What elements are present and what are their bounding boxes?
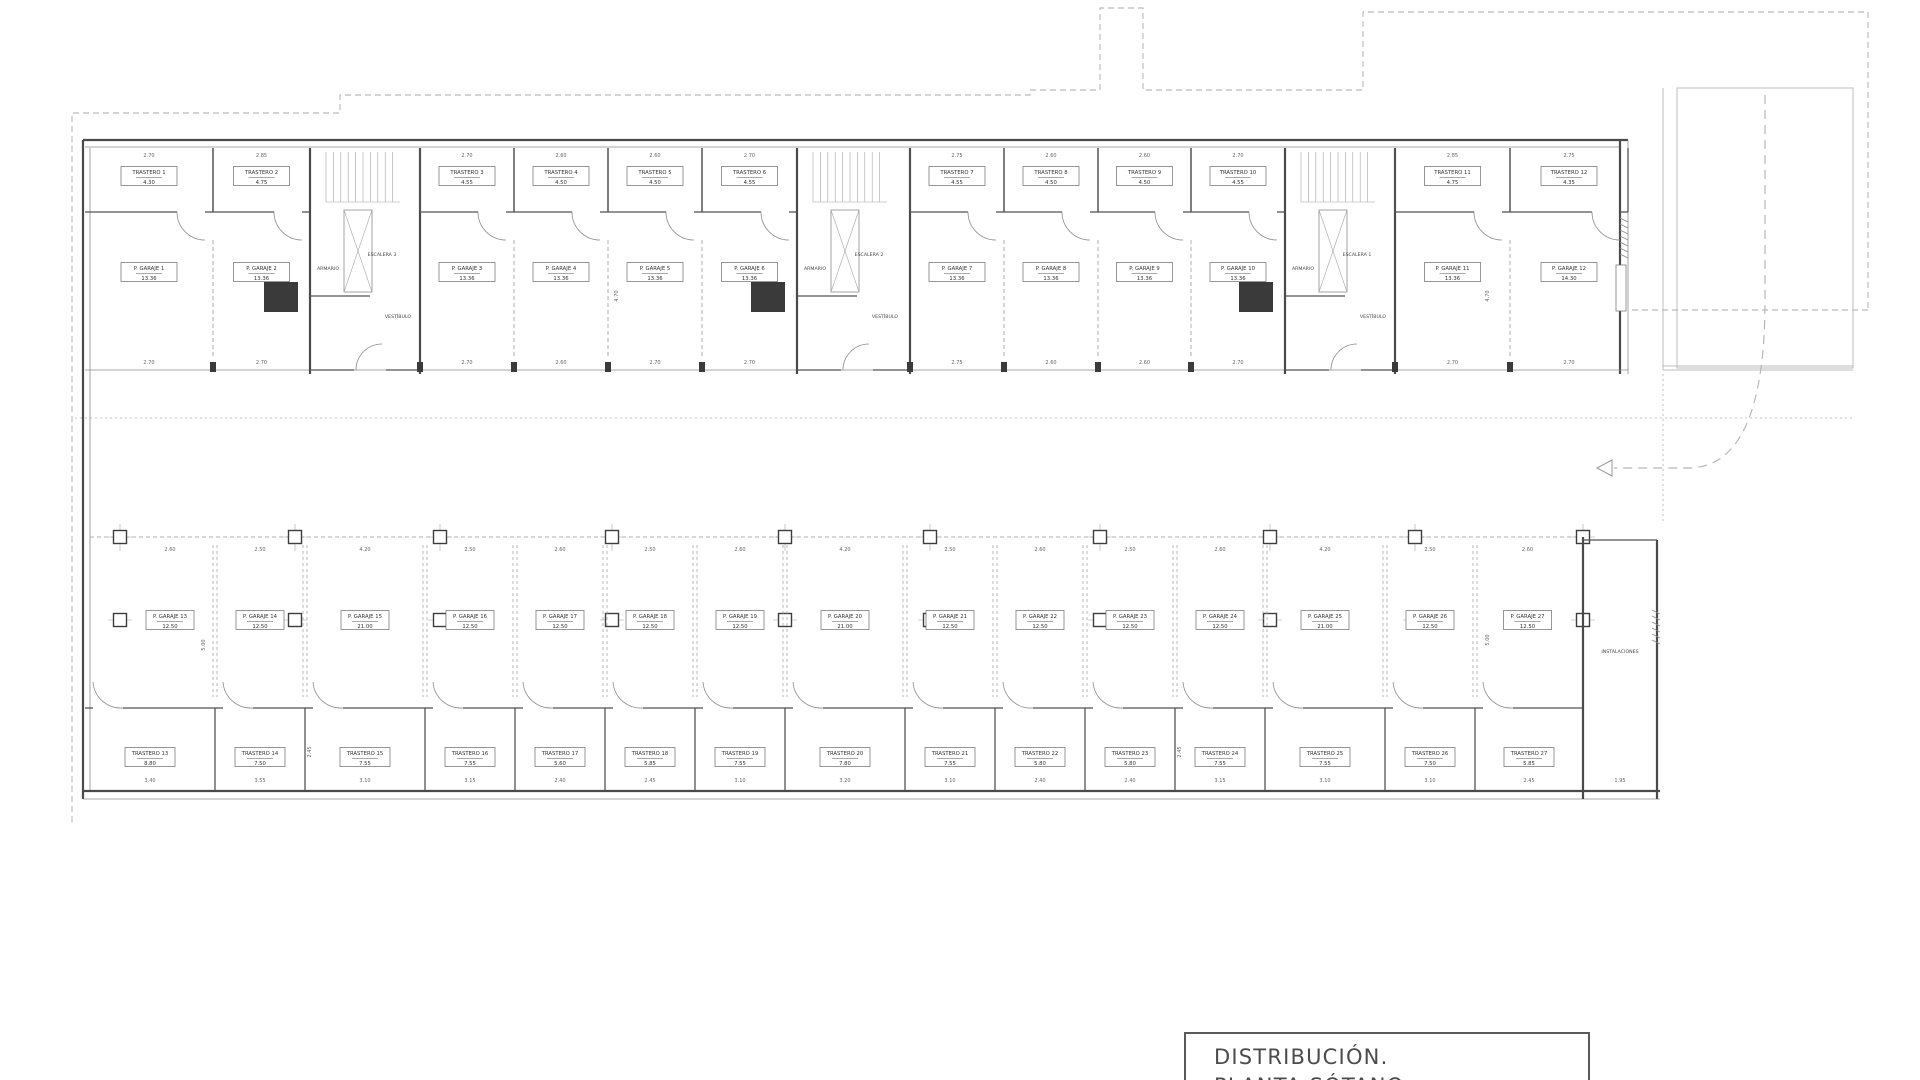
svg-text:12.50: 12.50 [1520,624,1536,630]
label-trastero-17: TRASTERO 175.60 [535,748,585,768]
svg-text:TRASTERO 9: TRASTERO 9 [1127,170,1161,176]
column [114,531,127,544]
svg-text:3.55: 3.55 [254,778,265,784]
svg-text:P. GARAJE 9: P. GARAJE 9 [1129,266,1160,272]
svg-text:P. GARAJE 8: P. GARAJE 8 [1036,266,1067,272]
column [434,614,447,627]
svg-text:ESCALERA 1: ESCALERA 1 [1343,252,1372,258]
svg-text:P. GARAJE 1: P. GARAJE 1 [134,266,165,272]
svg-text:2.60: 2.60 [1522,547,1533,553]
svg-text:5.85: 5.85 [1523,761,1535,767]
label-garaje-17: P. GARAJE 1712.50 [536,611,584,631]
label-garaje-9: P. GARAJE 913.36 [1117,263,1173,283]
svg-text:TRASTERO 8: TRASTERO 8 [1033,170,1068,176]
svg-text:TRASTERO 27: TRASTERO 27 [1510,751,1548,757]
svg-text:2.70: 2.70 [461,360,472,366]
svg-text:TRASTERO 12: TRASTERO 12 [1550,170,1588,176]
svg-text:3.10: 3.10 [1424,778,1435,784]
svg-text:2.85: 2.85 [1447,153,1458,159]
svg-text:P. GARAJE 24: P. GARAJE 24 [1203,614,1238,620]
svg-text:14.30: 14.30 [1561,276,1577,282]
title-block-line2: PLANTA SÓTANO [1214,1072,1588,1080]
svg-text:TRASTERO 24: TRASTERO 24 [1201,751,1239,757]
label-garaje-25: P. GARAJE 2521.00 [1301,611,1349,631]
svg-text:2.40: 2.40 [1034,778,1045,784]
svg-text:4.55: 4.55 [461,180,473,186]
svg-text:7.80: 7.80 [839,761,851,767]
label-trastero-8: TRASTERO 84.50 [1023,167,1079,187]
svg-text:2.40: 2.40 [554,778,565,784]
svg-text:TRASTERO 10: TRASTERO 10 [1219,170,1257,176]
svg-text:P. GARAJE 14: P. GARAJE 14 [243,614,278,620]
svg-text:4.70: 4.70 [1485,290,1491,301]
svg-text:TRASTERO 13: TRASTERO 13 [131,751,169,757]
label-garaje-5: P. GARAJE 513.36 [627,263,683,283]
svg-text:2.60: 2.60 [554,547,565,553]
svg-text:2.60: 2.60 [555,153,566,159]
svg-text:4.35: 4.35 [1563,180,1575,186]
svg-text:P. GARAJE 10: P. GARAJE 10 [1221,266,1256,272]
svg-text:TRASTERO 5: TRASTERO 5 [637,170,671,176]
svg-text:ESCALERA 3: ESCALERA 3 [368,252,397,258]
svg-text:13.36: 13.36 [742,276,758,282]
svg-text:2.60: 2.60 [1045,360,1056,366]
svg-text:P. GARAJE 22: P. GARAJE 22 [1023,614,1057,620]
svg-text:12.50: 12.50 [1212,624,1228,630]
label-garaje-23: P. GARAJE 2312.50 [1106,611,1154,631]
column [779,531,792,544]
label-garaje-19: P. GARAJE 1912.50 [716,611,764,631]
svg-text:TRASTERO 22: TRASTERO 22 [1021,751,1059,757]
column [1094,531,1107,544]
column [1264,614,1277,627]
label-trastero-26: TRASTERO 267.50 [1405,748,1455,768]
svg-text:P. GARAJE 21: P. GARAJE 21 [933,614,967,620]
svg-text:P. GARAJE 7: P. GARAJE 7 [942,266,973,272]
svg-text:TRASTERO 16: TRASTERO 16 [451,751,489,757]
svg-text:7.55: 7.55 [464,761,476,767]
entrance-ramp [1597,88,1853,522]
svg-text:5.00: 5.00 [201,639,207,650]
svg-text:13.36: 13.36 [647,276,663,282]
svg-text:TRASTERO 26: TRASTERO 26 [1411,751,1449,757]
svg-text:2.60: 2.60 [1045,153,1056,159]
title-block-line1: DISTRIBUCIÓN. [1214,1043,1588,1072]
svg-text:5.80: 5.80 [1124,761,1136,767]
svg-text:VESTÍBULO: VESTÍBULO [385,313,411,320]
svg-text:12.50: 12.50 [1422,624,1438,630]
svg-text:2.70: 2.70 [649,360,660,366]
svg-text:21.00: 21.00 [837,624,853,630]
svg-text:4.70: 4.70 [614,290,620,301]
svg-text:13.36: 13.36 [459,276,475,282]
svg-text:12.50: 12.50 [552,624,568,630]
parking-band: 2.60P. GARAJE 1312.502.50P. GARAJE 1412.… [90,524,1595,697]
column [606,531,619,544]
svg-text:2.45: 2.45 [1523,778,1534,784]
svg-text:5.60: 5.60 [554,761,566,767]
svg-text:2.60: 2.60 [555,360,566,366]
svg-text:P. GARAJE 12: P. GARAJE 12 [1552,266,1586,272]
svg-text:2.70: 2.70 [1447,360,1458,366]
svg-text:3.20: 3.20 [839,778,850,784]
label-garaje-21: P. GARAJE 2112.50 [926,611,974,631]
label-trastero-2: TRASTERO 24.75 [234,167,290,187]
label-garaje-7: P. GARAJE 713.36 [929,263,985,283]
svg-text:2.60: 2.60 [1139,360,1150,366]
svg-text:P. GARAJE 5: P. GARAJE 5 [640,266,671,272]
label-trastero-7: TRASTERO 74.55 [929,167,985,187]
svg-text:2.45: 2.45 [644,778,655,784]
svg-text:P. GARAJE 18: P. GARAJE 18 [633,614,668,620]
svg-text:2.50: 2.50 [944,547,955,553]
svg-text:5.80: 5.80 [1034,761,1046,767]
lift-door [1239,282,1273,312]
svg-text:2.60: 2.60 [649,153,660,159]
svg-text:5.00: 5.00 [1485,634,1491,645]
svg-text:13.36: 13.36 [1230,276,1246,282]
svg-text:2.60: 2.60 [1214,547,1225,553]
svg-text:P. GARAJE 23: P. GARAJE 23 [1113,614,1147,620]
instalaciones-room: INSTALACIONES1.95 [1583,537,1660,799]
svg-text:4.55: 4.55 [951,180,963,186]
label-trastero-22: TRASTERO 225.80 [1015,748,1065,768]
svg-text:P. GARAJE 2: P. GARAJE 2 [246,266,277,272]
svg-text:ARMARIO: ARMARIO [1292,266,1314,272]
svg-text:2.40: 2.40 [1124,778,1135,784]
label-garaje-4: P. GARAJE 413.36 [533,263,589,283]
svg-text:2.70: 2.70 [143,153,154,159]
svg-text:P. GARAJE 4: P. GARAJE 4 [546,266,577,272]
floor-plan-drawing: 2.70TRASTERO 14.30P. GARAJE 113.362.702.… [0,0,1920,1080]
svg-text:TRASTERO 3: TRASTERO 3 [449,170,483,176]
label-garaje-12: P. GARAJE 1214.30 [1541,263,1597,283]
svg-text:ARMARIO: ARMARIO [317,266,339,272]
svg-text:2.45: 2.45 [307,746,313,757]
label-garaje-10: P. GARAJE 1013.36 [1210,263,1266,283]
svg-text:8.80: 8.80 [144,761,156,767]
bottom-band: TRASTERO 138.803.40TRASTERO 147.503.55TR… [83,682,1660,799]
label-trastero-16: TRASTERO 167.55 [445,748,495,768]
svg-text:TRASTERO 14: TRASTERO 14 [241,751,279,757]
svg-text:2.60: 2.60 [1139,153,1150,159]
svg-text:P. GARAJE 25: P. GARAJE 25 [1308,614,1342,620]
svg-text:4.50: 4.50 [649,180,661,186]
svg-text:21.00: 21.00 [357,624,373,630]
column [1264,531,1277,544]
svg-text:P. GARAJE 16: P. GARAJE 16 [453,614,488,620]
svg-text:2.70: 2.70 [256,360,267,366]
label-garaje-13: P. GARAJE 1312.50 [146,611,194,631]
svg-text:P. GARAJE 6: P. GARAJE 6 [734,266,765,272]
svg-text:2.70: 2.70 [1232,153,1243,159]
svg-text:3.10: 3.10 [734,778,745,784]
label-trastero-6: TRASTERO 64.55 [722,167,778,187]
svg-text:2.60: 2.60 [1034,547,1045,553]
svg-text:13.36: 13.36 [254,276,270,282]
svg-text:4.20: 4.20 [359,547,370,553]
svg-text:3.10: 3.10 [944,778,955,784]
title-block: DISTRIBUCIÓN. PLANTA SÓTANO [1184,1032,1590,1080]
svg-text:TRASTERO 19: TRASTERO 19 [721,751,759,757]
svg-text:21.00: 21.00 [1317,624,1333,630]
svg-text:2.70: 2.70 [461,153,472,159]
label-trastero-14: TRASTERO 147.50 [235,748,285,768]
svg-text:2.60: 2.60 [164,547,175,553]
svg-text:12.50: 12.50 [252,624,268,630]
label-trastero-15: TRASTERO 157.55 [340,748,390,768]
svg-text:TRASTERO 15: TRASTERO 15 [346,751,384,757]
svg-text:TRASTERO 2: TRASTERO 2 [244,170,278,176]
svg-text:2.70: 2.70 [1563,360,1574,366]
label-garaje-27: P. GARAJE 2712.50 [1504,611,1552,631]
label-trastero-3: TRASTERO 34.55 [439,167,495,187]
column [779,614,792,627]
lift-door [264,282,298,312]
label-garaje-2: P. GARAJE 213.36 [234,263,290,283]
column [1409,531,1422,544]
svg-text:12.50: 12.50 [732,624,748,630]
label-trastero-1: TRASTERO 14.30 [121,167,177,187]
label-trastero-5: TRASTERO 54.50 [627,167,683,187]
svg-text:P. GARAJE 17: P. GARAJE 17 [543,614,577,620]
svg-text:2.70: 2.70 [1232,360,1243,366]
svg-text:2.70: 2.70 [143,360,154,366]
svg-text:12.50: 12.50 [942,624,958,630]
svg-text:7.55: 7.55 [944,761,956,767]
svg-text:P. GARAJE 27: P. GARAJE 27 [1511,614,1545,620]
svg-text:2.50: 2.50 [254,547,265,553]
svg-text:4.20: 4.20 [839,547,850,553]
label-garaje-24: P. GARAJE 2412.50 [1196,611,1244,631]
svg-text:TRASTERO 6: TRASTERO 6 [732,170,767,176]
svg-text:ARMARIO: ARMARIO [804,266,826,272]
svg-text:ESCALERA 2: ESCALERA 2 [855,252,884,258]
svg-text:4.55: 4.55 [744,180,756,186]
svg-text:2.50: 2.50 [644,547,655,553]
label-trastero-9: TRASTERO 94.50 [1117,167,1173,187]
svg-text:4.20: 4.20 [1319,547,1330,553]
label-trastero-21: TRASTERO 217.55 [925,748,975,768]
svg-text:12.50: 12.50 [1122,624,1138,630]
svg-text:5.85: 5.85 [644,761,656,767]
column [1094,614,1107,627]
svg-text:13.36: 13.36 [949,276,965,282]
svg-text:4.50: 4.50 [1139,180,1151,186]
label-garaje-18: P. GARAJE 1812.50 [626,611,674,631]
label-trastero-20: TRASTERO 207.80 [820,748,870,768]
label-garaje-20: P. GARAJE 2021.00 [821,611,869,631]
lift-door [751,282,785,312]
svg-text:TRASTERO 23: TRASTERO 23 [1111,751,1149,757]
svg-text:12.50: 12.50 [642,624,658,630]
svg-text:4.50: 4.50 [1045,180,1057,186]
svg-text:3.10: 3.10 [359,778,370,784]
svg-text:TRASTERO 21: TRASTERO 21 [931,751,969,757]
svg-text:12.50: 12.50 [462,624,478,630]
label-garaje-8: P. GARAJE 813.36 [1023,263,1079,283]
svg-text:3.40: 3.40 [144,778,155,784]
svg-text:7.50: 7.50 [254,761,266,767]
column [289,531,302,544]
svg-text:2.75: 2.75 [1563,153,1574,159]
svg-text:P. GARAJE 19: P. GARAJE 19 [723,614,757,620]
label-trastero-18: TRASTERO 185.85 [625,748,675,768]
svg-text:13.36: 13.36 [1137,276,1153,282]
svg-text:2.70: 2.70 [744,153,755,159]
svg-text:P. GARAJE 20: P. GARAJE 20 [828,614,863,620]
svg-text:1.95: 1.95 [1614,778,1625,784]
svg-text:TRASTERO 1: TRASTERO 1 [131,170,165,176]
floor-plan-sheet: 2.70TRASTERO 14.30P. GARAJE 113.362.702.… [0,0,1920,1080]
svg-text:13.36: 13.36 [141,276,157,282]
garage-door-right [1616,265,1626,311]
svg-text:TRASTERO 25: TRASTERO 25 [1306,751,1344,757]
column [114,614,127,627]
svg-text:2.85: 2.85 [256,153,267,159]
svg-text:3.10: 3.10 [1319,778,1330,784]
svg-text:4.75: 4.75 [256,180,268,186]
svg-text:2.50: 2.50 [1124,547,1135,553]
label-garaje-15: P. GARAJE 1521.00 [341,611,389,631]
svg-text:P. GARAJE 15: P. GARAJE 15 [348,614,382,620]
svg-text:TRASTERO 20: TRASTERO 20 [826,751,864,757]
svg-text:P. GARAJE 11: P. GARAJE 11 [1436,266,1470,272]
svg-text:TRASTERO 17: TRASTERO 17 [541,751,579,757]
svg-text:13.36: 13.36 [1043,276,1059,282]
svg-text:VESTÍBULO: VESTÍBULO [872,313,898,320]
label-garaje-1: P. GARAJE 113.36 [121,263,177,283]
svg-text:VESTÍBULO: VESTÍBULO [1360,313,1386,320]
svg-text:TRASTERO 4: TRASTERO 4 [543,170,578,176]
svg-text:3.15: 3.15 [464,778,475,784]
column [434,531,447,544]
column [289,614,302,627]
svg-text:3.15: 3.15 [1214,778,1225,784]
svg-text:TRASTERO 18: TRASTERO 18 [631,751,669,757]
column [924,531,937,544]
svg-text:12.50: 12.50 [162,624,178,630]
svg-text:7.50: 7.50 [1424,761,1436,767]
label-trastero-25: TRASTERO 257.55 [1300,748,1350,768]
column [606,614,619,627]
svg-text:P. GARAJE 26: P. GARAJE 26 [1413,614,1448,620]
top-band: 2.70TRASTERO 14.30P. GARAJE 113.362.702.… [83,140,1628,799]
label-garaje-3: P. GARAJE 313.36 [439,263,495,283]
svg-text:13.36: 13.36 [1445,276,1461,282]
entry-arrow-icon [1597,460,1612,476]
site-boundary [72,8,1868,822]
label-trastero-10: TRASTERO 104.55 [1210,167,1266,187]
svg-text:7.55: 7.55 [734,761,746,767]
label-garaje-26: P. GARAJE 2612.50 [1406,611,1454,631]
svg-text:2.50: 2.50 [1424,547,1435,553]
svg-text:7.55: 7.55 [1214,761,1226,767]
label-trastero-12: TRASTERO 124.35 [1541,167,1597,187]
svg-text:13.36: 13.36 [553,276,569,282]
label-trastero-24: TRASTERO 247.55 [1195,748,1245,768]
label-garaje-16: P. GARAJE 1612.50 [446,611,494,631]
svg-text:P. GARAJE 3: P. GARAJE 3 [452,266,483,272]
svg-text:4.55: 4.55 [1232,180,1244,186]
svg-text:TRASTERO 11: TRASTERO 11 [1433,170,1471,176]
label-trastero-27: TRASTERO 275.85 [1504,748,1554,768]
svg-text:4.75: 4.75 [1447,180,1459,186]
label-garaje-14: P. GARAJE 1412.50 [236,611,284,631]
svg-text:12.50: 12.50 [1032,624,1048,630]
svg-text:2.45: 2.45 [1177,746,1183,757]
svg-text:2.50: 2.50 [464,547,475,553]
label-trastero-4: TRASTERO 44.50 [533,167,589,187]
svg-text:2.60: 2.60 [734,547,745,553]
svg-text:4.50: 4.50 [555,180,567,186]
label-trastero-11: TRASTERO 114.75 [1425,167,1481,187]
svg-text:P. GARAJE 13: P. GARAJE 13 [153,614,187,620]
label-garaje-11: P. GARAJE 1113.36 [1425,263,1481,283]
svg-text:2.75: 2.75 [951,153,962,159]
label-trastero-13: TRASTERO 138.80 [125,748,175,768]
label-garaje-22: P. GARAJE 2212.50 [1016,611,1064,631]
vehicle-path [1614,95,1765,468]
svg-text:7.55: 7.55 [1319,761,1331,767]
svg-text:TRASTERO 7: TRASTERO 7 [939,170,973,176]
svg-text:7.55: 7.55 [359,761,371,767]
svg-text:2.70: 2.70 [744,360,755,366]
label-trastero-19: TRASTERO 197.55 [715,748,765,768]
label-garaje-6: P. GARAJE 613.36 [722,263,778,283]
svg-text:2.75: 2.75 [951,360,962,366]
label-trastero-23: TRASTERO 235.80 [1105,748,1155,768]
svg-text:INSTALACIONES: INSTALACIONES [1601,649,1638,655]
svg-text:4.30: 4.30 [143,180,155,186]
